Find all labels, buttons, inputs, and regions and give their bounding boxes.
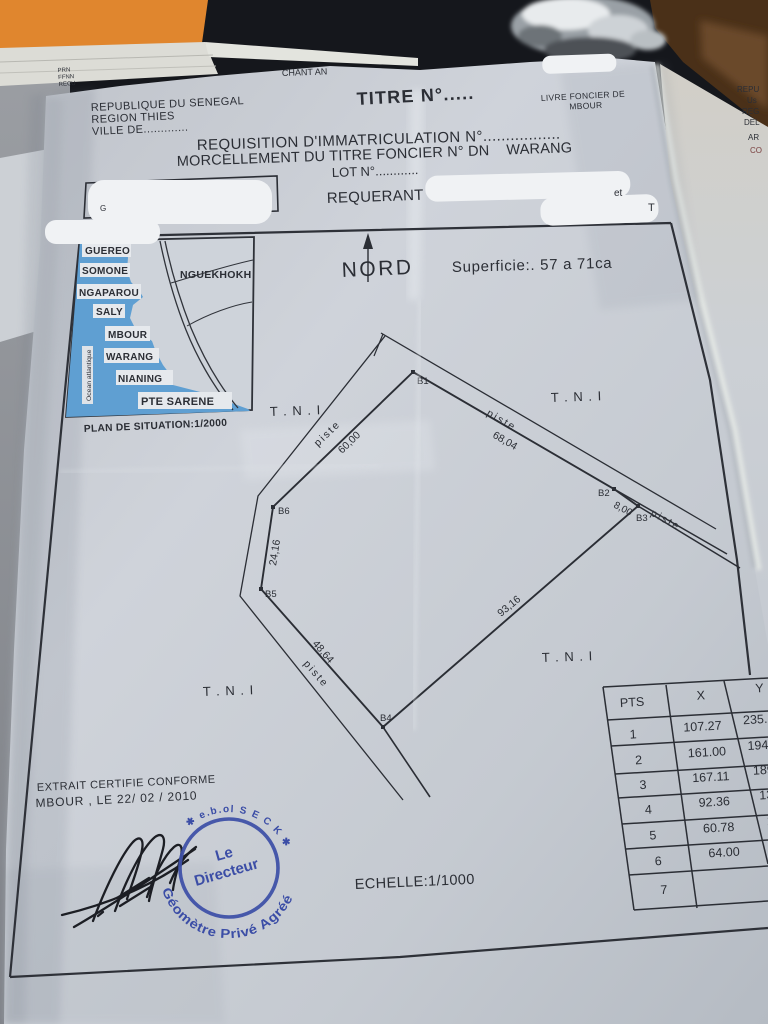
svg-text:PTE SARENE: PTE SARENE (141, 396, 214, 408)
svg-text:107.27: 107.27 (683, 718, 722, 734)
svg-text:SOMONE: SOMONE (82, 266, 128, 277)
svg-text:64.00: 64.00 (708, 845, 740, 861)
svg-text:Us: Us (747, 96, 757, 105)
svg-text:T . N . I: T . N . I (270, 402, 322, 419)
svg-text:RECU: RECU (58, 81, 75, 88)
svg-text:CO: CO (750, 146, 762, 155)
svg-text:et: et (614, 188, 623, 199)
svg-text:CHANT AN: CHANT AN (282, 66, 328, 78)
svg-text:167.11: 167.11 (692, 769, 730, 785)
svg-text:194.7: 194.7 (747, 737, 768, 753)
svg-text:REG: REG (742, 107, 759, 116)
svg-text:SALY: SALY (96, 307, 123, 318)
svg-text:7: 7 (660, 883, 668, 897)
svg-text:B2: B2 (598, 488, 610, 499)
svg-text:T . N . I: T . N . I (542, 648, 594, 665)
svg-text:Y: Y (755, 681, 765, 695)
svg-text:B3: B3 (636, 513, 648, 524)
svg-text:B6: B6 (278, 506, 290, 517)
svg-text:MBOUR: MBOUR (108, 330, 148, 341)
svg-text:189: 189 (753, 763, 768, 778)
svg-text:G: G (100, 204, 106, 213)
svg-text:161.00: 161.00 (687, 744, 726, 760)
svg-text:92.36: 92.36 (698, 794, 730, 810)
svg-text:131: 131 (759, 787, 768, 802)
svg-text:T: T (648, 202, 655, 214)
svg-text:1: 1 (629, 727, 637, 741)
svg-text:3: 3 (639, 778, 647, 792)
svg-text:NGUEKHOKH: NGUEKHOKH (180, 269, 252, 281)
svg-text:Ocean atlantique: Ocean atlantique (86, 349, 93, 401)
svg-text:AR: AR (748, 133, 759, 142)
svg-text:LOT N°............: LOT N°............ (332, 162, 419, 180)
svg-text:235.5: 235.5 (743, 711, 768, 727)
svg-text:NORD: NORD (341, 256, 414, 282)
svg-text:REPU: REPU (737, 85, 759, 94)
svg-text:NIANING: NIANING (118, 374, 162, 385)
svg-text:6: 6 (654, 854, 662, 868)
svg-text:T . N . I: T . N . I (203, 682, 255, 699)
svg-text:FFNN: FFNN (58, 74, 74, 81)
svg-text:GUEREO: GUEREO (85, 246, 130, 257)
svg-text:X: X (696, 688, 706, 702)
svg-text:B5: B5 (265, 589, 277, 600)
svg-text:PRN: PRN (58, 67, 71, 74)
svg-text:60.78: 60.78 (703, 820, 735, 836)
svg-text:REQUERANT: REQUERANT (327, 187, 424, 207)
svg-text:NGAPAROU: NGAPAROU (79, 288, 139, 299)
svg-text:5: 5 (649, 828, 657, 842)
svg-text:MBOUR: MBOUR (569, 100, 603, 112)
svg-text:DEL: DEL (744, 118, 760, 127)
svg-text:PTS: PTS (620, 695, 645, 710)
svg-text:4: 4 (645, 802, 653, 816)
svg-text:2: 2 (635, 753, 643, 767)
svg-text:B4: B4 (380, 713, 392, 724)
svg-text:WARANG: WARANG (106, 352, 153, 363)
svg-text:T . N . I: T . N . I (551, 388, 603, 405)
